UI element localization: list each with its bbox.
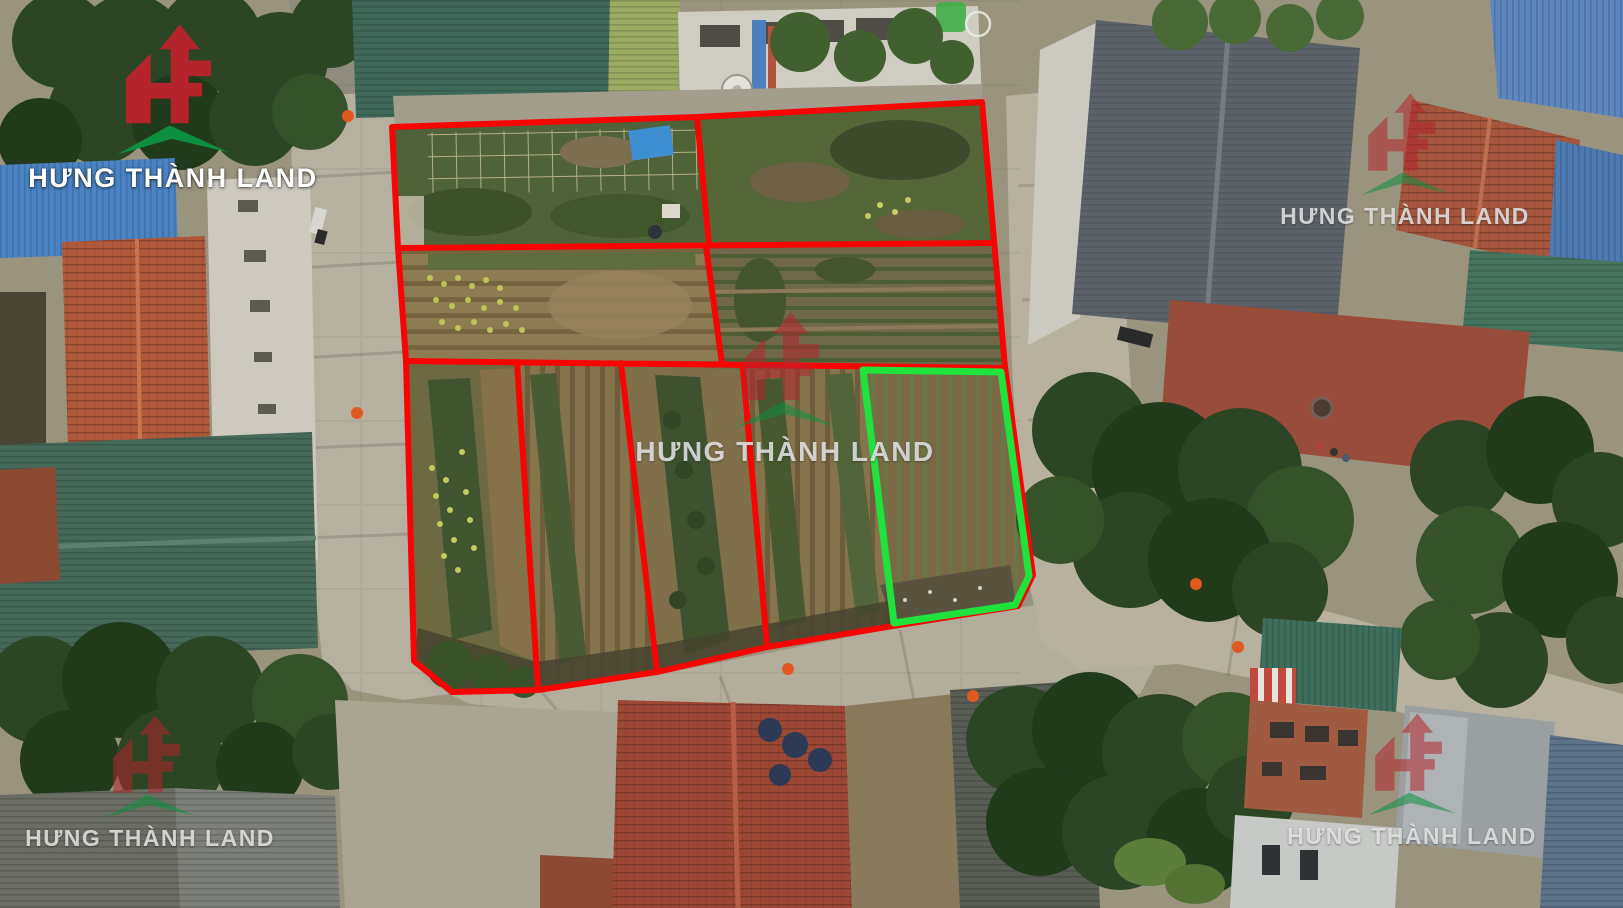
brick-terrace-building xyxy=(1244,700,1368,818)
plot-middle-left xyxy=(398,246,720,364)
dark-yard-left xyxy=(0,292,46,452)
trees-right-edge xyxy=(1400,396,1623,708)
plot-top-left xyxy=(392,117,705,256)
bucket xyxy=(648,225,662,239)
concrete-yard-bottom xyxy=(335,700,640,908)
well xyxy=(1312,398,1332,418)
gray-metal-roof-bottom-right xyxy=(1395,705,1555,858)
blue-panel xyxy=(752,20,766,100)
slate-roof-house xyxy=(1072,12,1360,338)
aerial-photo-canvas xyxy=(0,0,1623,908)
person xyxy=(1330,448,1338,456)
plot-middle-right xyxy=(703,243,1003,368)
blue-tarp xyxy=(628,125,674,161)
garden-block xyxy=(392,102,1033,692)
red-tile-roof-bottom xyxy=(612,700,852,908)
aerial-photo: HƯNG THÀNH LAND HƯNG THÀNH LAND HƯNG THÀ… xyxy=(0,0,1623,908)
white-tray xyxy=(662,204,680,218)
red-roof-left-edge xyxy=(0,467,60,584)
plot-top-right xyxy=(697,102,995,245)
gray-roofs-bottom-left xyxy=(0,788,340,908)
person xyxy=(1342,454,1350,462)
orange-tile-roof-house xyxy=(62,236,210,444)
blue-gray-roof-corner xyxy=(1540,735,1623,908)
person xyxy=(1316,442,1324,450)
white-building-bottom-right xyxy=(1230,815,1400,908)
